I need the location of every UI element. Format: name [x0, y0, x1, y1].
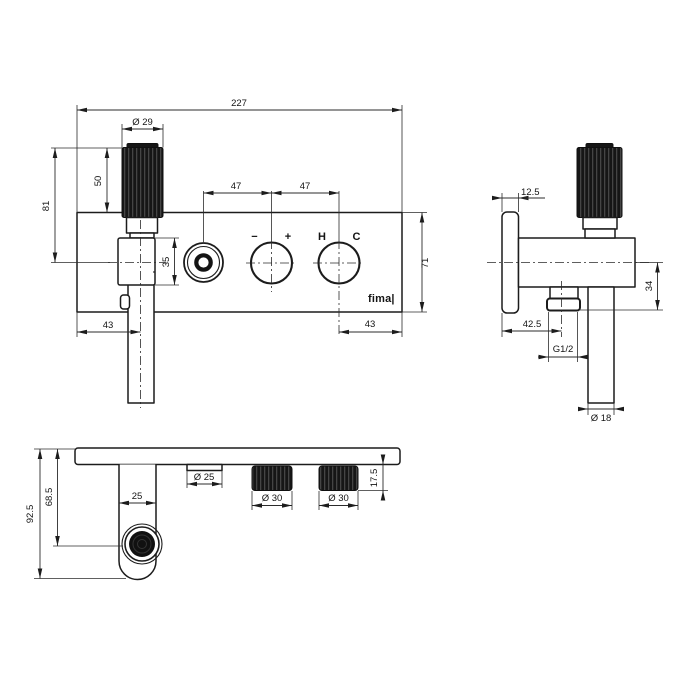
dim-label-overall-depth: 92.5: [25, 505, 36, 524]
side-view: 12.5 34 42.5 G1/2 Ø 18: [487, 144, 663, 425]
dim-label-spray-depth: 68.5: [44, 488, 55, 507]
side-outlet-stub: [550, 287, 578, 299]
dim-label-knob-spacing-left: 47: [231, 181, 242, 192]
bottom-wall-plate: [75, 448, 400, 465]
dim-label-plate-height: 71: [420, 258, 431, 269]
dim-label-plate-thickness: 12.5: [521, 187, 540, 198]
label-hot: H: [318, 231, 326, 243]
dim-label-knob-height: 17.5: [369, 469, 380, 488]
dim-label-height-to-axis: 81: [41, 201, 52, 212]
dim-label-holder-height: 35: [161, 257, 172, 268]
front-knurled-handle: [122, 148, 163, 218]
brand-logo: fima|: [368, 293, 395, 305]
dim-label-knob2-diameter: Ø 30: [328, 493, 349, 504]
dim-label-thread: G1/2: [553, 344, 574, 355]
side-handle-neck: [583, 218, 617, 230]
dim-label-knob-spacing-right: 47: [300, 181, 311, 192]
side-knurled-handle: [577, 148, 622, 218]
bottom-diverter-sleeve: [187, 465, 222, 471]
dim-label-overall-width: 227: [231, 98, 247, 109]
side-outlet-nut: [547, 299, 580, 311]
front-view: 227 Ø 29 50 81 47 47 35 71 43 43 − + H C…: [41, 98, 431, 408]
dim-label-outlet-offset: 42.5: [523, 319, 542, 330]
bottom-spray-face: [122, 524, 162, 564]
dim-label-handle-height: 50: [93, 176, 104, 187]
faucet-technical-drawing: 227 Ø 29 50 81 47 47 35 71 43 43 − + H C…: [0, 0, 700, 700]
dim-label-spout-width: 25: [132, 491, 143, 502]
dim-label-pipe-diameter: Ø 18: [591, 413, 612, 424]
dim-label-handle-diameter: Ø 29: [132, 117, 153, 128]
front-pipe-clip: [121, 295, 130, 309]
label-cold: C: [353, 231, 361, 243]
side-pipe: [588, 287, 614, 403]
dim-label-offset-right: 43: [365, 319, 376, 330]
bottom-knob-2: [319, 466, 358, 491]
label-minus: −: [251, 231, 257, 243]
dim-label-offset-left: 43: [103, 320, 114, 331]
label-plus: +: [285, 231, 291, 243]
bottom-view: 92.5 68.5 25 Ø 25 Ø 30 Ø 30 17.5: [25, 448, 400, 579]
technical-drawing-sheet: 227 Ø 29 50 81 47 47 35 71 43 43 − + H C…: [0, 0, 700, 700]
front-handle-neck: [127, 218, 158, 234]
side-handle-collar: [585, 229, 615, 238]
dim-label-outlet-drop: 34: [644, 281, 655, 292]
front-handshower-holder: [118, 238, 155, 285]
dim-label-knob1-diameter: Ø 30: [262, 493, 283, 504]
bottom-knob-1: [252, 466, 292, 491]
dim-label-diverter-diameter: Ø 25: [194, 472, 215, 483]
front-handshower-pipe: [128, 284, 154, 403]
